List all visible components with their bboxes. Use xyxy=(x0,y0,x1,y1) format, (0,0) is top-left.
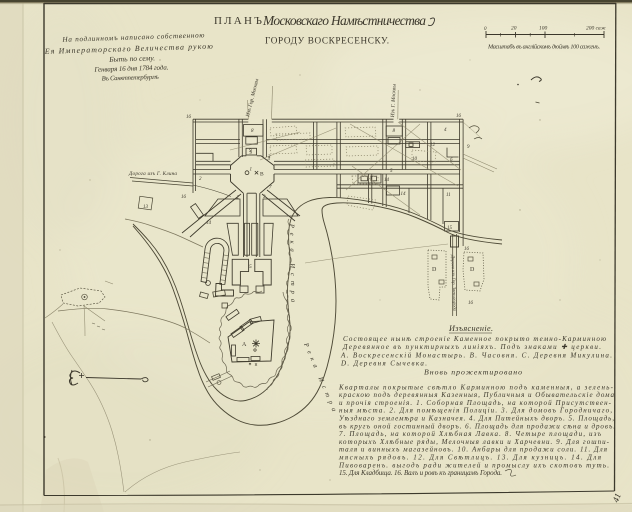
svg-text:14: 14 xyxy=(384,178,390,183)
svg-text:16: 16 xyxy=(181,195,187,200)
svg-text:Деревянное въ пунктирныхъ лині: Деревянное въ пунктирныхъ линіяхъ. Подъ … xyxy=(342,343,601,351)
svg-text:D: D xyxy=(432,267,437,273)
svg-text:100: 100 xyxy=(539,26,548,32)
svg-text:5: 5 xyxy=(249,264,252,270)
svg-text:и прочія строенія. 1. Соборная: и прочія строенія. 1. Соборная Площадь, … xyxy=(339,399,612,407)
svg-text:16: 16 xyxy=(468,301,474,306)
svg-text:16: 16 xyxy=(464,247,470,252)
svg-text:D. Деревня Сычевка.: D. Деревня Сычевка. xyxy=(340,359,427,367)
svg-text:A: A xyxy=(242,342,247,348)
svg-text:16: 16 xyxy=(456,114,462,119)
svg-text:Уѣзднаго землемѣра и Казначея.: Уѣзднаго землемѣра и Казначея. 4. Для Пи… xyxy=(339,415,614,423)
svg-text:12: 12 xyxy=(430,143,436,148)
svg-text:ГОРОДУ ВОСКРЕСЕНСКУ.: ГОРОДУ ВОСКРЕСЕНСКУ. xyxy=(265,36,389,46)
svg-text:D: D xyxy=(470,267,475,273)
svg-text:Река Истра: Река Истра xyxy=(288,223,296,307)
svg-text:14: 14 xyxy=(401,192,407,197)
svg-text:мясныхъ рядовъ. 12. Для Свѣтли: мясныхъ рядовъ. 12. Для Свѣтлицъ. 13. Дл… xyxy=(338,454,601,462)
svg-text:Быть по сему.: Быть по сему. xyxy=(108,53,155,63)
svg-text:Кварталы покрытые свѣтло Карми: Кварталы покрытые свѣтло Карминною подъ … xyxy=(338,383,614,391)
svg-text:200 саж: 200 саж xyxy=(586,26,607,32)
svg-text:Дорога изъ Г. Клина: Дорога изъ Г. Клина xyxy=(128,171,177,177)
svg-text:въ кругъ оной гостинный дворъ.: въ кругъ оной гостинный дворъ. 6. Площад… xyxy=(339,422,615,430)
svg-text:ПЛАНЪ: ПЛАНЪ xyxy=(214,15,264,27)
svg-text:ныя мѣста. 2. Для помѣщенія По: ныя мѣста. 2. Для помѣщенія Полиціи. 3. … xyxy=(339,407,612,415)
svg-text:А. Воскресенскій Монастырь. В.: А. Воскресенскій Монастырь. В. Часовня. … xyxy=(340,351,612,359)
svg-text:11: 11 xyxy=(446,193,451,198)
svg-text:которыхъ Хлѣбные ряды, Мелочны: которыхъ Хлѣбные ряды, Мелочныя лавки и … xyxy=(339,438,610,446)
svg-text:Состоящее нынѣ строеніе Каменн: Состоящее нынѣ строеніе Каменное покрыто… xyxy=(343,335,606,343)
svg-text:15. Для Кладбища. 16. Валъ и р: 15. Для Кладбища. 16. Валъ и ровъ къ гра… xyxy=(339,469,502,477)
svg-text:7. Площадь, на которой Хлѣбная: 7. Площадь, на которой Хлѣбная Лавка. 8.… xyxy=(339,430,601,438)
svg-text:Масштабъ въ англійскомъ дюймѣ: Масштабъ въ англійскомъ дюймѣ 100 саженъ… xyxy=(487,44,600,51)
svg-text:Вновь прожектировано: Вновь прожектировано xyxy=(424,367,522,376)
svg-text:Пивоваренъ. выгодъ ради жителе: Пивоваренъ. выгодъ ради жителей и промыс… xyxy=(338,461,609,469)
svg-text:Московскаго Намѣстничества: Московскаго Намѣстничества xyxy=(262,13,426,28)
svg-text:таля и винныхъ магазейновъ. 10: таля и винныхъ магазейновъ. 10. Анбары д… xyxy=(339,446,607,454)
svg-text:14: 14 xyxy=(206,221,212,226)
svg-text:B: B xyxy=(260,172,264,178)
svg-text:20: 20 xyxy=(511,26,517,32)
svg-text:Изъясненіе.: Изъясненіе. xyxy=(448,324,493,333)
svg-text:16: 16 xyxy=(186,115,192,120)
svg-text:краскою подъ деревянныя Казенн: краскою подъ деревянныя Казенныя, Публич… xyxy=(339,391,615,399)
svg-text:1: 1 xyxy=(250,168,253,173)
